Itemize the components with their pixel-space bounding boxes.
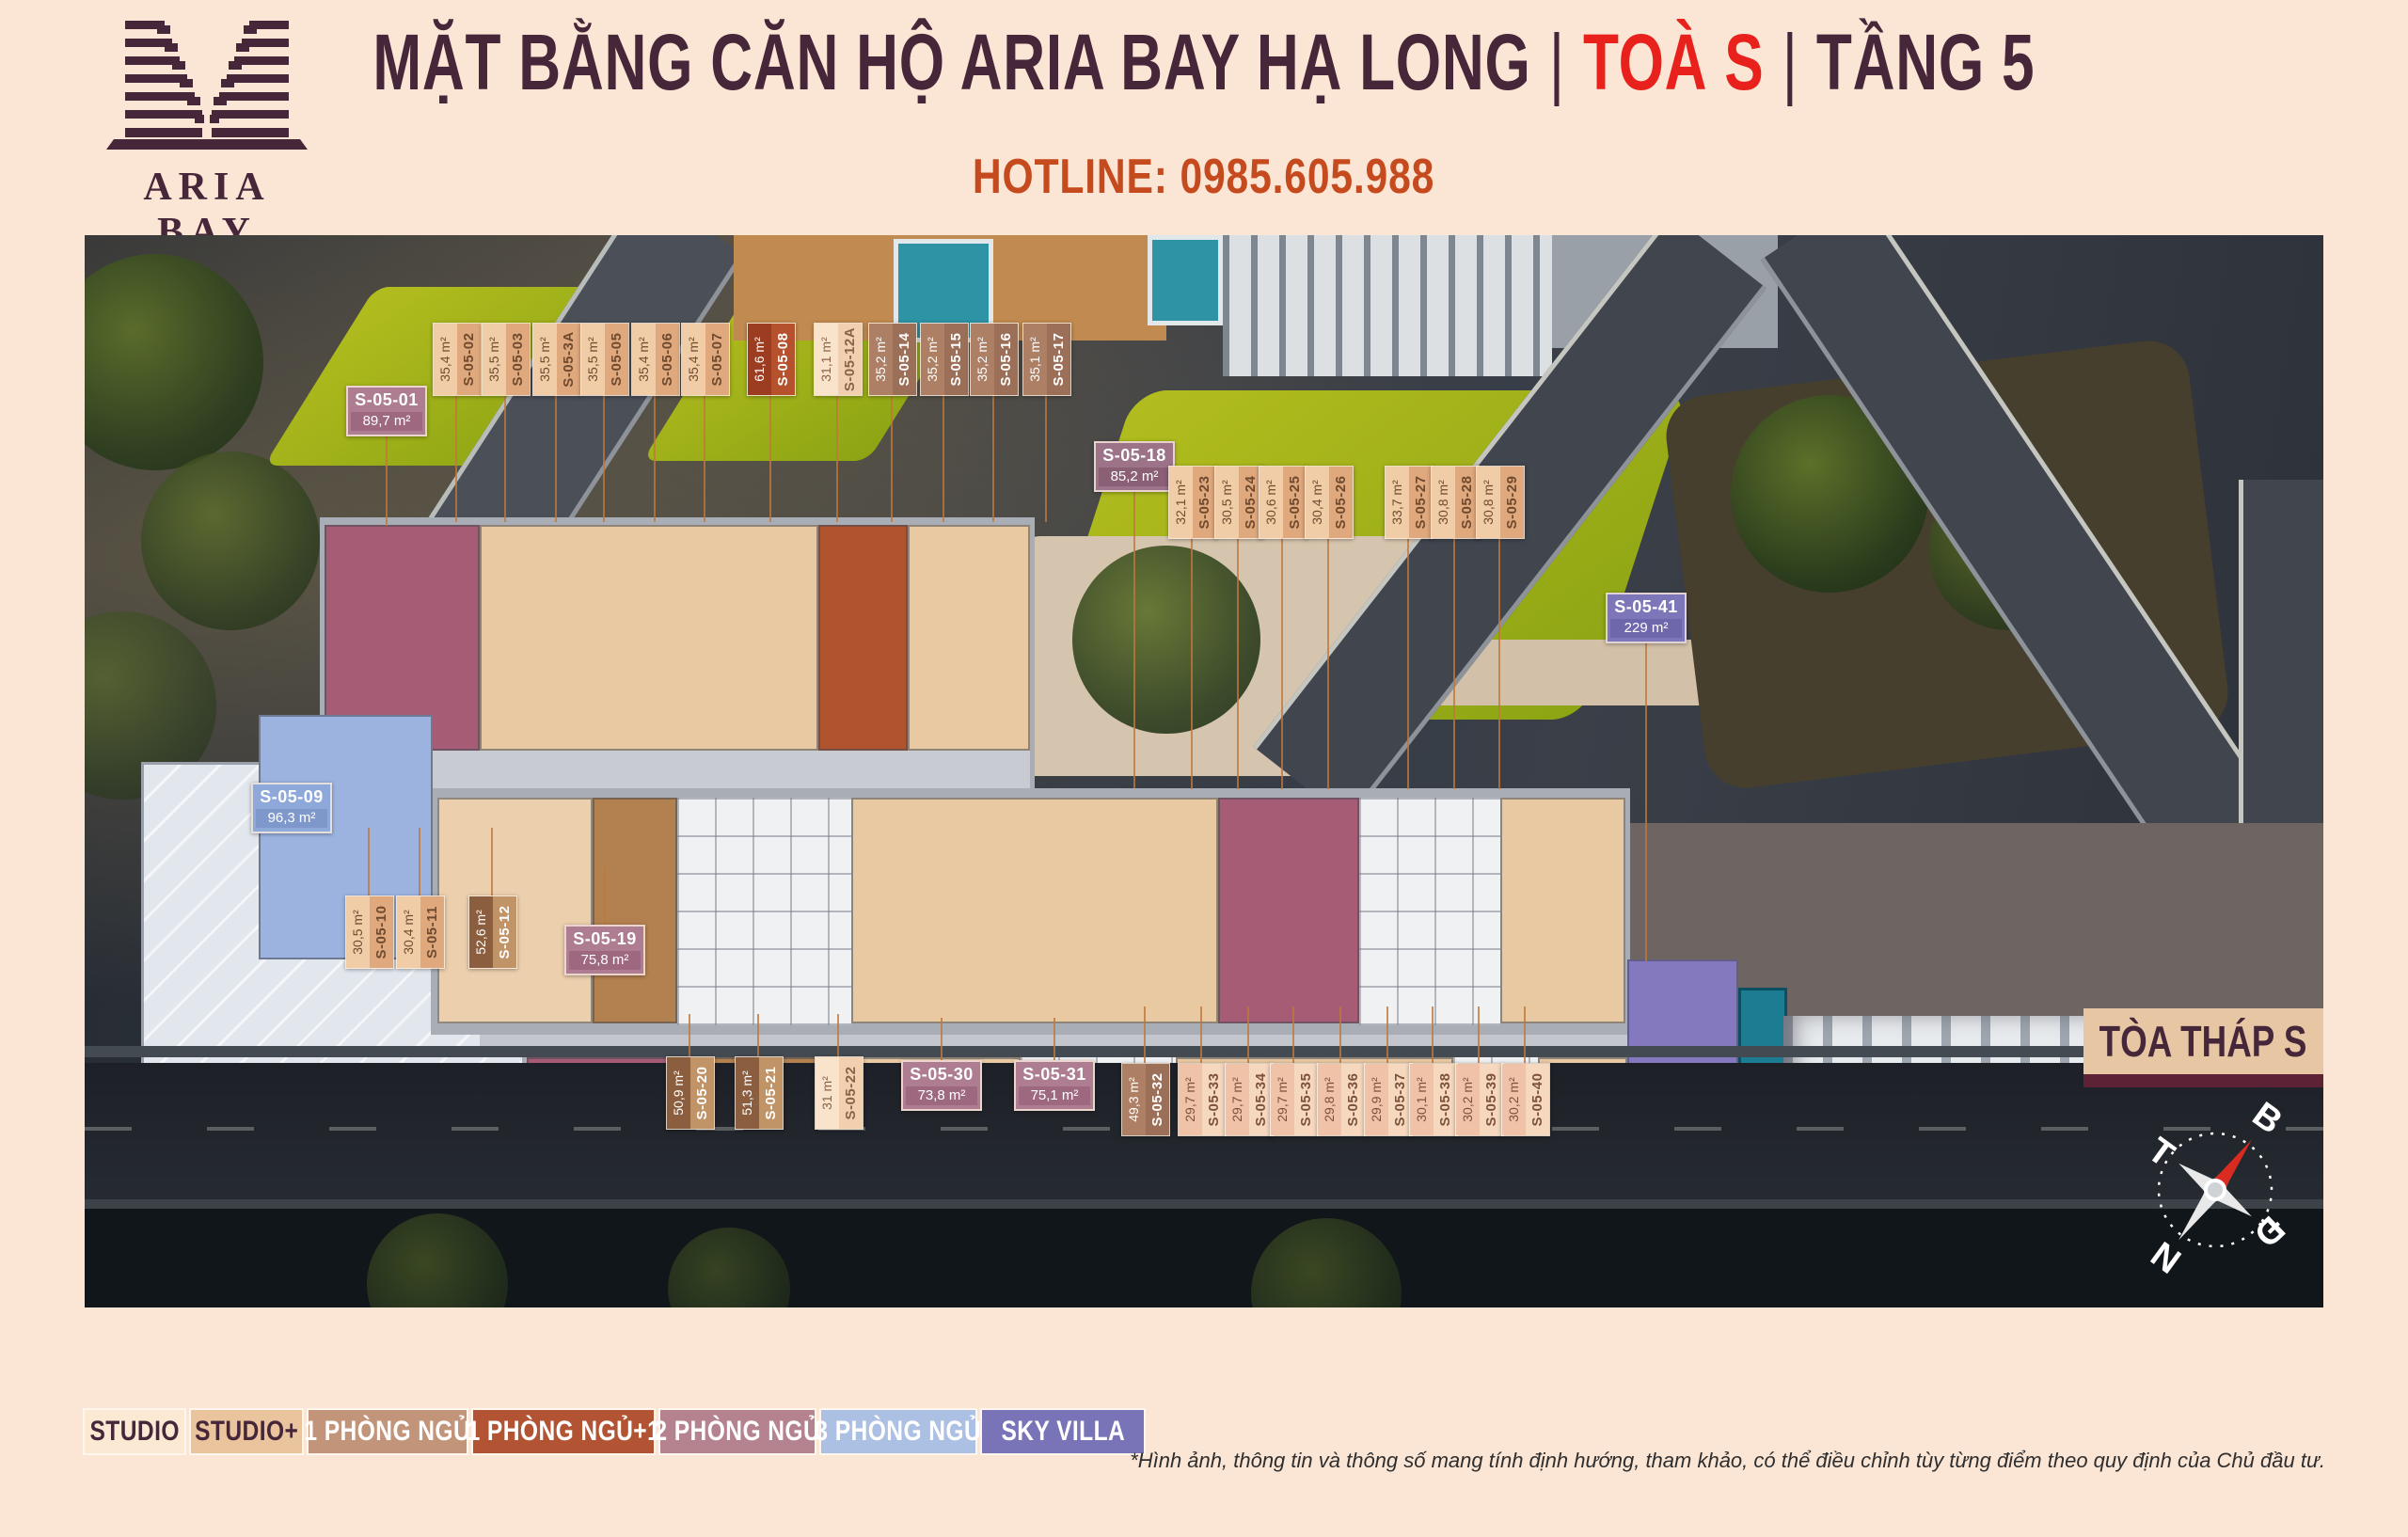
unit-tag-s-05-27: 33,7 m²S-05-27 [1385,466,1434,539]
unit-tag-s-05-11: 30,4 m²S-05-11 [396,895,445,969]
unit-tag-s-05-28: 30,8 m²S-05-28 [1431,466,1480,539]
legend-item-studio-: STUDIO+ [189,1408,304,1455]
unit-area-label: 35,2 m² [869,324,893,395]
tower-banner: TÒA THÁP S [2083,1008,2323,1074]
unit-id-label: S-05-25 [1283,467,1307,538]
unit-tag-s-05-05: 35,5 m²S-05-05 [580,323,629,396]
unit-tag-s-05-09: S-05-0996,3 m² [251,783,332,833]
unit-area-label: 96,3 m² [256,809,327,828]
unit-area-label: 29,7 m² [1226,1064,1249,1135]
unit-area-label: 35,5 m² [483,324,506,395]
unit-id-label: S-05-22 [839,1057,863,1129]
unit-area-label: 30,6 m² [1259,467,1283,538]
unit-id-label: S-05-38 [1434,1064,1457,1135]
unit-tag-s-05-02: 35,4 m²S-05-02 [433,323,482,396]
leader-line [1247,1006,1249,1063]
legend-item-1-ph-ng-ng-: 1 PHÒNG NGỦ [307,1408,468,1455]
leader-line [1144,1006,1146,1063]
unit-tag-s-05-31: S-05-3175,1 m² [1014,1060,1095,1111]
unit-block-studio-row [908,525,1030,751]
unit-id-label: S-05-05 [605,324,628,395]
unit-block-studio-row [480,525,818,751]
compass-rose-icon: B Đ N T [2140,1086,2290,1293]
unit-tag-s-05-35: 29,7 m²S-05-35 [1270,1063,1319,1136]
unit-tag-s-05-21: 51,3 m²S-05-21 [735,1056,784,1130]
unit-area-label: 61,6 m² [748,324,771,395]
unit-tag-s-05-07: 35,4 m²S-05-07 [681,323,730,396]
unit-area-label: 73,8 m² [906,1086,977,1105]
leader-line [555,394,557,522]
unit-id-label: S-05-31 [1016,1062,1093,1086]
unit-id-label: S-05-21 [759,1057,783,1129]
leader-line [1237,537,1239,789]
elevator-core [1359,798,1500,1025]
unit-id-label: S-05-40 [1526,1064,1549,1135]
sidewalk [85,1199,2323,1209]
unit-tag-s-05-15: 35,2 m²S-05-15 [920,323,969,396]
leader-line [1407,537,1409,789]
leader-line [1453,537,1455,789]
svg-text:T: T [2140,1131,2180,1176]
unit-id-label: S-05-16 [994,324,1018,395]
unit-area-label: 35,4 m² [632,324,656,395]
unit-area-label: 229 m² [1610,619,1682,638]
unit-block-1br1 [818,525,908,751]
leader-line [604,868,606,925]
unit-id-label: S-05-14 [893,324,916,395]
unit-area-label: 32,1 m² [1169,467,1193,538]
unit-tag-s-05-29: 30,8 m²S-05-29 [1476,466,1525,539]
legend-item-1-ph-ng-ng-1: 1 PHÒNG NGỦ+1 [471,1408,656,1455]
leader-line [757,1014,759,1056]
title-tower: TOÀ S [1583,18,1765,106]
elevator-core [677,798,851,1025]
leader-line [943,394,944,522]
unit-tag-s-05-12: 52,6 m²S-05-12 [468,895,517,969]
unit-area-label: 33,7 m² [1386,467,1409,538]
swimming-pool [1148,235,1223,325]
leader-line [1281,537,1283,789]
unit-area-label: 50,9 m² [667,1057,690,1129]
tree-canopy [141,452,320,630]
leader-line [1498,537,1500,789]
unit-tag-s-05-26: 30,4 m²S-05-26 [1305,466,1354,539]
leader-line [603,394,605,522]
leader-line [455,394,457,522]
title-main: MẶT BẰNG CĂN HỘ ARIA BAY HẠ LONG [373,18,1531,106]
tower-banner-label: TÒA THÁP S [2099,1016,2307,1067]
unit-id-label: S-05-10 [370,896,393,968]
unit-id-label: S-05-12A [838,324,862,395]
disclaimer-note: *Hình ảnh, thông tin và thông số mang tí… [1130,1449,2325,1473]
unit-id-label: S-05-32 [1146,1064,1169,1135]
poster-page: ARIA BAY MẶT BẰNG CĂN HỘ ARIA BAY HẠ LON… [0,0,2408,1537]
page-title: MẶT BẰNG CĂN HỘ ARIA BAY HẠ LONG|TOÀ S|T… [0,17,2408,108]
svg-text:B: B [2245,1095,2289,1142]
unit-tag-s-05-06: 35,4 m²S-05-06 [631,323,680,396]
unit-tag-s-05-39: 30,2 m²S-05-39 [1455,1063,1504,1136]
unit-area-label: 85,2 m² [1099,467,1170,486]
title-separator: | [1531,18,1583,106]
unit-area-label: 30,5 m² [346,896,370,968]
unit-tag-s-05-12a: 31,1 m²S-05-12A [814,323,863,396]
unit-area-label: 51,3 m² [736,1057,759,1129]
legend-item-studio: STUDIO [83,1408,186,1455]
unit-area-label: 30,4 m² [397,896,420,968]
unit-id-label: S-05-07 [705,324,729,395]
leader-line [704,394,705,522]
title-separator: | [1765,18,1816,106]
unit-id-label: S-05-3A [557,324,580,395]
unit-tag-s-05-03: 35,5 m²S-05-03 [482,323,531,396]
leader-line [1478,1006,1480,1063]
unit-id-label: S-05-33 [1202,1064,1226,1135]
leader-line [689,1014,690,1056]
leader-line [1191,537,1193,789]
unit-block-2br [1218,798,1359,1023]
leader-line [941,1018,943,1060]
legend-item-sky-villa: SKY VILLA [980,1408,1146,1455]
leader-line [891,394,893,522]
unit-area-label: 49,3 m² [1122,1064,1146,1135]
unit-tag-s-05-23: 32,1 m²S-05-23 [1168,466,1217,539]
svg-text:Đ: Đ [2246,1208,2290,1254]
unit-id-label: S-05-19 [566,927,643,951]
svg-text:N: N [2144,1235,2188,1282]
unit-area-label: 35,1 m² [1023,324,1047,395]
unit-tag-s-05-30: S-05-3073,8 m² [901,1060,982,1111]
unit-tag-s-05-25: 30,6 m²S-05-25 [1259,466,1307,539]
unit-tag-s-05-14: 35,2 m²S-05-14 [868,323,917,396]
unit-area-label: 31 m² [816,1057,839,1129]
unit-id-label: S-05-18 [1096,443,1173,467]
unit-area-label: 30,4 m² [1306,467,1329,538]
unit-id-label: S-05-15 [944,324,968,395]
title-floor: TẦNG 5 [1816,18,2035,106]
unit-id-label: S-05-17 [1047,324,1070,395]
legend: STUDIOSTUDIO+1 PHÒNG NGỦ1 PHÒNG NGỦ+12 P… [83,1408,1146,1455]
leader-line [1432,1006,1434,1063]
leader-line [386,436,388,526]
leader-line [491,828,493,895]
unit-id-label: S-05-29 [1500,467,1524,538]
unit-id-label: S-05-27 [1409,467,1433,538]
leader-line [1339,1006,1341,1063]
unit-area-label: 31,1 m² [815,324,838,395]
unit-block-studio-row [851,798,1218,1023]
unit-tag-s-05-38: 30,1 m²S-05-38 [1409,1063,1458,1136]
unit-id-label: S-05-09 [253,784,330,809]
unit-id-label: S-05-36 [1341,1064,1365,1135]
unit-id-label: S-05-39 [1480,1064,1503,1135]
unit-area-label: 29,8 m² [1318,1064,1341,1135]
leader-line [1645,643,1647,961]
hotline: HOTLINE: 0985.605.988 [0,149,2408,205]
leader-line [654,394,656,522]
tower-banner-strip [2083,1074,2323,1087]
unit-area-label: 52,6 m² [469,896,493,968]
leader-line [1386,1006,1388,1063]
unit-area-label: 89,7 m² [351,412,422,431]
unit-id-label: S-05-11 [420,896,444,968]
leader-line [836,394,838,522]
unit-tag-s-05-20: 50,9 m²S-05-20 [666,1056,715,1130]
unit-area-label: 29,7 m² [1179,1064,1202,1135]
leader-line [992,394,994,522]
leader-line [1524,1006,1526,1063]
unit-area-label: 29,9 m² [1365,1064,1388,1135]
unit-tag-s-05-16: 35,2 m²S-05-16 [970,323,1019,396]
unit-area-label: 35,5 m² [533,324,557,395]
unit-area-label: 35,2 m² [921,324,944,395]
legend-item-2-ph-ng-ng-: 2 PHÒNG NGỦ [658,1408,816,1455]
unit-tag-s-05-17: 35,1 m²S-05-17 [1022,323,1071,396]
unit-area-label: 29,7 m² [1271,1064,1294,1135]
unit-id-label: S-05-20 [690,1057,714,1129]
leader-line [837,1014,839,1056]
unit-area-label: 30,5 m² [1215,467,1239,538]
unit-id-label: S-05-06 [656,324,679,395]
unit-tag-s-05-22: 31 m²S-05-22 [815,1056,863,1130]
unit-id-label: S-05-01 [348,388,425,412]
leader-line [1053,1018,1055,1060]
leader-line [769,394,771,522]
leader-line [368,828,370,895]
unit-id-label: S-05-41 [1608,594,1685,619]
unit-id-label: S-05-03 [506,324,530,395]
unit-id-label: S-05-30 [903,1062,980,1086]
unit-id-label: S-05-08 [771,324,795,395]
unit-area-label: 30,1 m² [1410,1064,1434,1135]
leader-line [504,394,506,522]
leader-line [1292,1006,1294,1063]
unit-tag-s-05-18: S-05-1885,2 m² [1094,441,1175,492]
tree-canopy [1072,546,1260,734]
unit-area-label: 30,2 m² [1502,1064,1526,1135]
unit-tag-s-05-10: 30,5 m²S-05-10 [345,895,394,969]
unit-tag-s-05-3a: 35,5 m²S-05-3A [532,323,581,396]
sidewalk [85,1046,2323,1057]
unit-tag-s-05-34: 29,7 m²S-05-34 [1225,1063,1274,1136]
unit-tag-s-05-19: S-05-1975,8 m² [564,925,645,975]
unit-area-label: 30,8 m² [1477,467,1500,538]
unit-tag-s-05-36: 29,8 m²S-05-36 [1317,1063,1366,1136]
unit-block-studio-row [1500,798,1625,1023]
unit-tag-s-05-33: 29,7 m²S-05-33 [1178,1063,1227,1136]
unit-tag-s-05-40: 30,2 m²S-05-40 [1501,1063,1550,1136]
unit-area-label: 30,8 m² [1432,467,1455,538]
unit-area-label: 30,2 m² [1456,1064,1480,1135]
unit-area-label: 35,2 m² [971,324,994,395]
unit-id-label: S-05-02 [457,324,481,395]
leader-line [1200,1006,1202,1063]
building-roof [1223,235,1552,376]
site-aerial-photo: S-05-0189,7 m²35,4 m²S-05-0235,5 m²S-05-… [85,235,2323,1307]
unit-id-label: S-05-12 [493,896,516,968]
unit-tag-s-05-24: 30,5 m²S-05-24 [1214,466,1263,539]
leader-line [1045,394,1047,522]
unit-area-label: 35,4 m² [434,324,457,395]
unit-tag-s-05-32: 49,3 m²S-05-32 [1121,1063,1170,1136]
unit-area-label: 35,4 m² [682,324,705,395]
legend-item-3-ph-ng-ng-: 3 PHÒNG NGỦ [819,1408,977,1455]
leader-line [1133,492,1135,788]
unit-tag-s-05-37: 29,9 m²S-05-37 [1364,1063,1413,1136]
unit-area-label: 75,8 m² [569,951,641,970]
unit-area-label: 35,5 m² [581,324,605,395]
unit-id-label: S-05-23 [1193,467,1216,538]
unit-tag-s-05-41: S-05-41229 m² [1606,593,1687,643]
unit-id-label: S-05-35 [1294,1064,1318,1135]
unit-area-label: 75,1 m² [1019,1086,1090,1105]
unit-tag-s-05-01: S-05-0189,7 m² [346,386,427,436]
unit-id-label: S-05-26 [1329,467,1353,538]
unit-tag-s-05-08: 61,6 m²S-05-08 [747,323,796,396]
leader-line [419,828,420,895]
tree-canopy [85,254,263,470]
leader-line [1327,537,1329,789]
